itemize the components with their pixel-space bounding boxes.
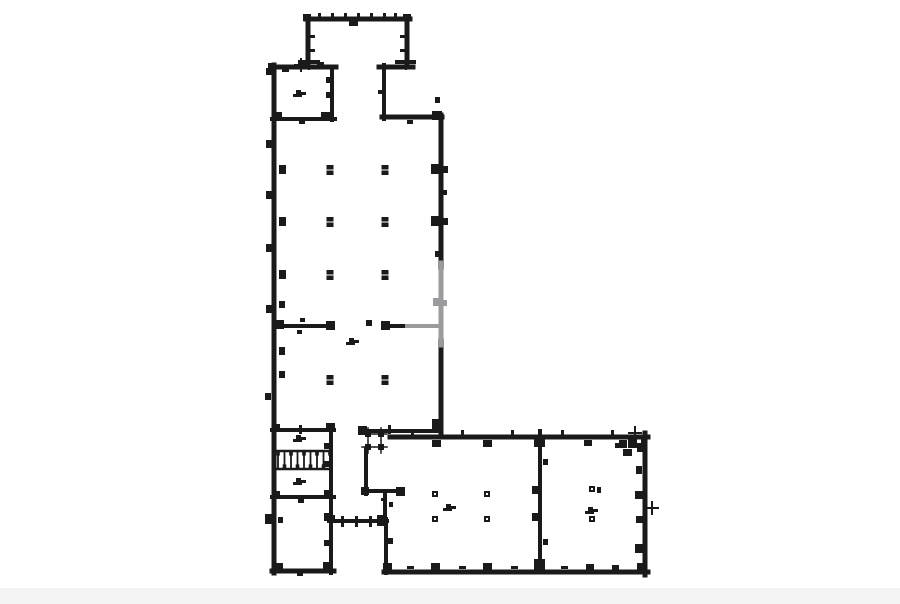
staircase-group xyxy=(276,452,332,468)
floor-plan-drawing xyxy=(0,0,900,604)
paper-background xyxy=(0,0,900,604)
floorplan-page xyxy=(0,0,900,604)
